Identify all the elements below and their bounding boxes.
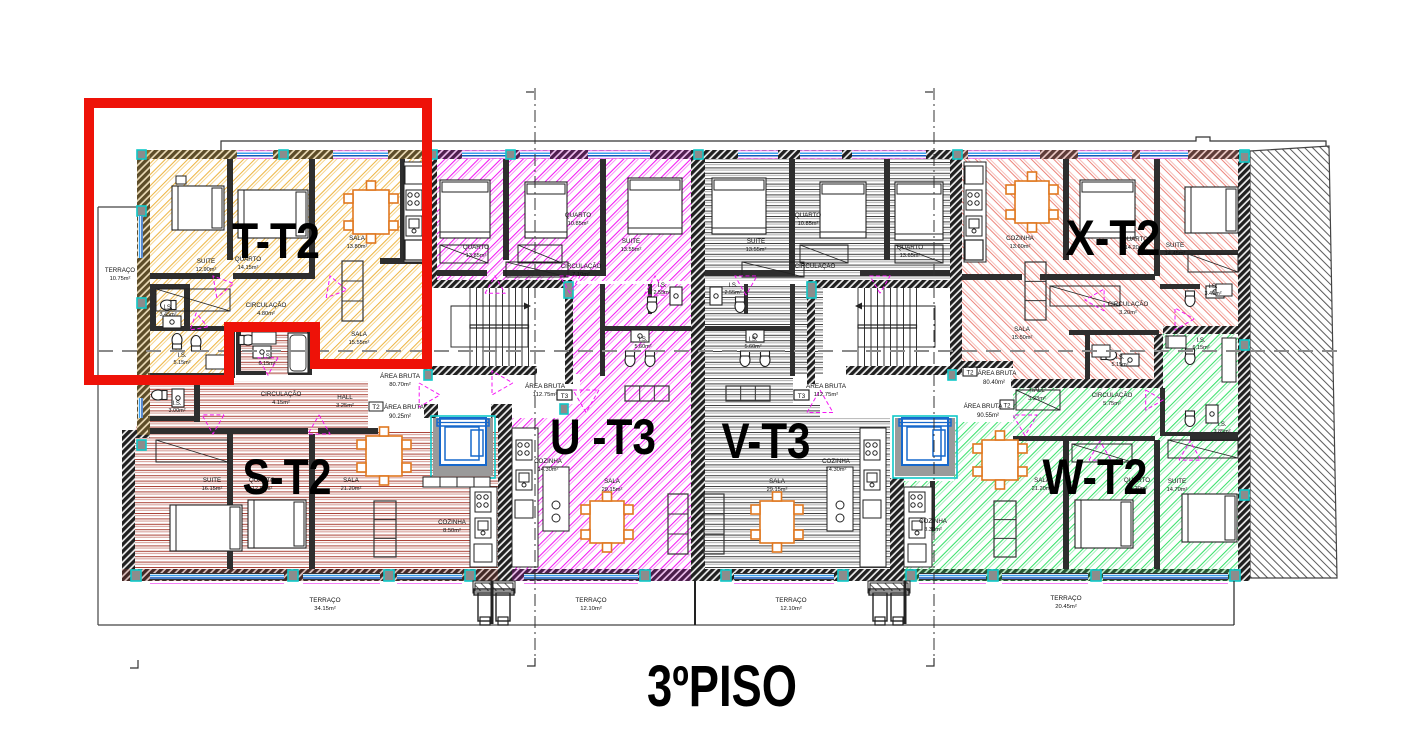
svg-text:112.75m²: 112.75m² (814, 392, 838, 398)
svg-text:10.75m²: 10.75m² (110, 276, 131, 282)
svg-text:SUITE: SUITE (1168, 478, 1186, 485)
svg-text:I.S.: I.S. (1208, 284, 1217, 290)
svg-text:3.25m²: 3.25m² (336, 403, 354, 409)
svg-text:3ºPISO: 3ºPISO (647, 654, 797, 719)
svg-text:5.60m²: 5.60m² (744, 344, 761, 350)
svg-text:TERRAÇO: TERRAÇO (575, 597, 606, 604)
svg-text:5.15m²: 5.15m² (173, 360, 190, 366)
svg-text:13.55m²: 13.55m² (621, 247, 642, 253)
svg-text:10.85m²: 10.85m² (568, 221, 589, 227)
svg-text:10.85m²: 10.85m² (798, 221, 819, 227)
svg-text:5.60m²: 5.60m² (634, 344, 651, 350)
svg-text:ÁREA BRUTA: ÁREA BRUTA (964, 403, 1004, 410)
svg-text:90.25m²: 90.25m² (389, 414, 411, 420)
svg-text:QUARTO: QUARTO (795, 212, 821, 219)
svg-text:90.55m²: 90.55m² (977, 413, 999, 419)
svg-text:3.20m²: 3.20m² (1119, 310, 1137, 316)
svg-text:14.30m²: 14.30m² (826, 467, 847, 473)
svg-text:W-T2: W-T2 (1043, 449, 1148, 505)
svg-text:13.60m²: 13.60m² (1010, 244, 1031, 250)
svg-text:SUITE: SUITE (203, 477, 221, 484)
svg-text:SALA: SALA (343, 477, 360, 484)
svg-text:T-T2: T-T2 (232, 213, 320, 269)
svg-text:CIRCULAÇÃO: CIRCULAÇÃO (561, 263, 602, 270)
svg-text:12.10m²: 12.10m² (780, 606, 802, 612)
svg-text:SUITE: SUITE (1166, 242, 1184, 249)
svg-text:I.S.: I.S. (728, 283, 737, 289)
svg-text:2.55m²: 2.55m² (653, 290, 670, 296)
svg-text:TERRAÇO: TERRAÇO (775, 597, 806, 604)
svg-text:ÁREA BRUTA: ÁREA BRUTA (525, 381, 566, 390)
svg-text:ÁREA BRUTA: ÁREA BRUTA (384, 402, 425, 411)
svg-text:3.00m²: 3.00m² (168, 408, 185, 414)
svg-text:SUITE: SUITE (197, 258, 215, 265)
svg-text:20.45m²: 20.45m² (1055, 604, 1077, 610)
svg-text:15.55m²: 15.55m² (349, 340, 370, 346)
svg-text:I.S.: I.S. (657, 283, 666, 289)
svg-text:ÁREA BRUTA: ÁREA BRUTA (978, 370, 1018, 377)
svg-text:TERRAÇO: TERRAÇO (1050, 595, 1081, 602)
svg-text:80.70m²: 80.70m² (389, 382, 411, 388)
svg-text:I.S.: I.S. (172, 401, 181, 407)
svg-text:COZINHA: COZINHA (919, 518, 948, 525)
svg-text:4.15m²: 4.15m² (272, 400, 290, 406)
svg-text:SALA: SALA (349, 235, 366, 242)
svg-text:7.10m²: 7.10m² (572, 272, 590, 278)
svg-text:6.15m²: 6.15m² (258, 361, 275, 367)
svg-text:I.S.: I.S. (1217, 422, 1226, 428)
svg-text:15.50m²: 15.50m² (1012, 335, 1033, 341)
svg-text:COZINHA: COZINHA (1006, 235, 1035, 242)
svg-text:21.20m²: 21.20m² (341, 486, 362, 492)
svg-text:14.70m²: 14.70m² (1167, 487, 1188, 493)
svg-text:T3: T3 (561, 393, 569, 400)
svg-text:4.80m²: 4.80m² (257, 311, 275, 317)
svg-text:X-T2: X-T2 (1066, 210, 1161, 266)
svg-text:8.50m²: 8.50m² (443, 528, 461, 534)
svg-text:12.10m²: 12.10m² (580, 606, 602, 612)
svg-text:SALA: SALA (769, 478, 786, 485)
svg-text:5.75m²: 5.75m² (1103, 401, 1121, 407)
svg-text:QUARTO: QUARTO (463, 244, 489, 251)
svg-text:CIRCULAÇÃO: CIRCULAÇÃO (261, 391, 302, 398)
svg-text:80.40m²: 80.40m² (983, 380, 1005, 386)
svg-text:14.45m²: 14.45m² (1165, 251, 1186, 257)
svg-text:112.75m²: 112.75m² (533, 392, 557, 398)
svg-text:I.S.: I.S. (1196, 338, 1205, 344)
svg-text:COZINHA: COZINHA (822, 458, 851, 465)
svg-text:T2: T2 (1003, 404, 1011, 410)
svg-text:I.S.: I.S. (638, 337, 647, 343)
svg-text:QUARTO: QUARTO (897, 244, 923, 251)
svg-text:CIRCULAÇÃO: CIRCULAÇÃO (1108, 301, 1149, 308)
svg-text:SUITE: SUITE (622, 238, 640, 245)
svg-text:HALL: HALL (337, 394, 353, 401)
svg-text:U -T3: U -T3 (550, 409, 656, 465)
svg-text:34.15m²: 34.15m² (314, 606, 336, 612)
svg-text:29.15m²: 29.15m² (602, 487, 623, 493)
svg-text:I.S.: I.S. (262, 354, 271, 360)
svg-text:I.S.: I.S. (1115, 355, 1124, 361)
svg-text:2.55m²: 2.55m² (724, 290, 741, 296)
svg-text:I.S.: I.S. (748, 337, 757, 343)
svg-text:CIRCULAÇÃO: CIRCULAÇÃO (246, 302, 287, 309)
svg-text:13.65m²: 13.65m² (900, 253, 921, 259)
svg-text:T2: T2 (372, 404, 380, 411)
svg-text:SALA: SALA (1014, 326, 1031, 333)
svg-text:14.30m²: 14.30m² (538, 467, 559, 473)
svg-text:8.30m²: 8.30m² (924, 527, 942, 533)
svg-text:V-T3: V-T3 (722, 413, 811, 469)
svg-text:SALA: SALA (604, 478, 621, 485)
svg-text:3.85m²: 3.85m² (1213, 429, 1230, 435)
svg-text:ÁREA BRUTA: ÁREA BRUTA (380, 371, 421, 380)
svg-text:6.15m²: 6.15m² (1192, 345, 1209, 351)
svg-text:I.S.: I.S. (177, 353, 186, 359)
svg-text:I.S.: I.S. (163, 305, 172, 311)
svg-text:QUARTO: QUARTO (565, 212, 591, 219)
svg-text:5.15m²: 5.15m² (1111, 362, 1128, 368)
svg-text:13.85m²: 13.85m² (466, 253, 487, 259)
svg-text:HALL: HALL (1029, 387, 1045, 394)
svg-text:29.15m²: 29.15m² (767, 487, 788, 493)
svg-text:ÁREA BRUTA: ÁREA BRUTA (806, 381, 847, 390)
svg-text:TERRAÇO: TERRAÇO (309, 597, 340, 604)
svg-text:16.15m²: 16.15m² (202, 486, 223, 492)
svg-text:CIRCULAÇÃO: CIRCULAÇÃO (795, 263, 836, 270)
svg-text:T3: T3 (798, 393, 806, 400)
svg-text:12.90m²: 12.90m² (196, 267, 217, 273)
svg-text:3.45m²: 3.45m² (159, 312, 176, 318)
svg-text:13.55m²: 13.55m² (746, 247, 767, 253)
svg-text:3.40m²: 3.40m² (1204, 291, 1221, 297)
svg-text:CIRCULAÇÃO: CIRCULAÇÃO (1092, 392, 1133, 399)
svg-text:COZINHA: COZINHA (438, 519, 467, 526)
svg-text:3.23m²: 3.23m² (1028, 396, 1046, 402)
svg-text:SALA: SALA (351, 331, 368, 338)
svg-text:S-T2: S-T2 (243, 449, 332, 505)
svg-text:13.80m²: 13.80m² (347, 244, 368, 250)
svg-text:T2: T2 (966, 371, 974, 377)
svg-text:SUITE: SUITE (747, 238, 765, 245)
svg-text:TERRAÇO: TERRAÇO (105, 267, 135, 274)
